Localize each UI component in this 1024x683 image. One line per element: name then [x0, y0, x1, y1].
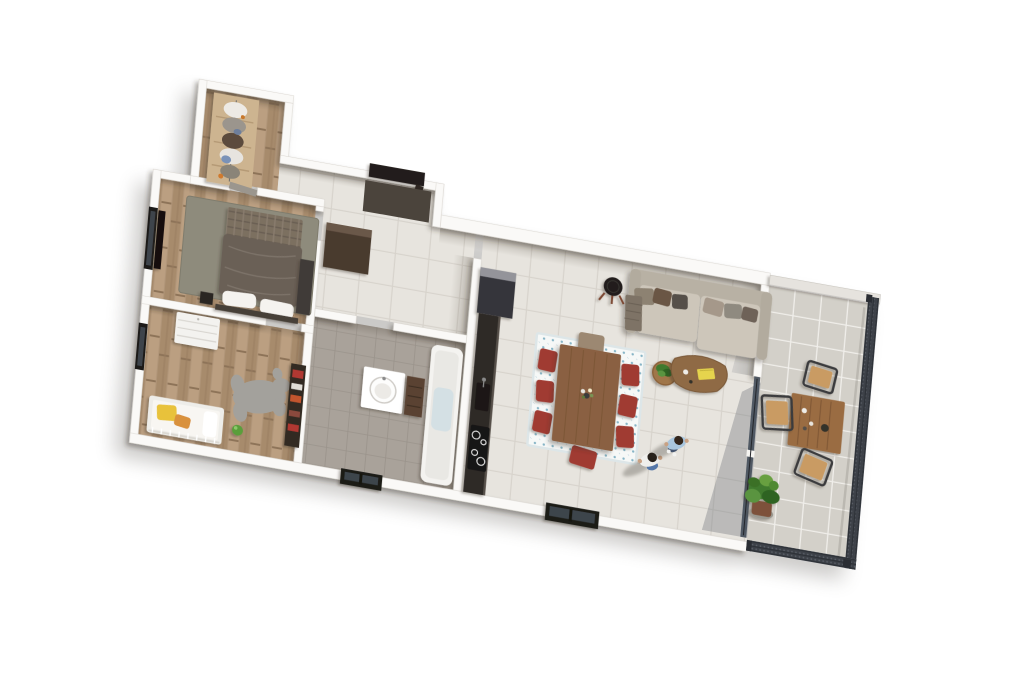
- tub-water: [431, 386, 454, 432]
- plan-projection-group: [114, 70, 888, 586]
- master-bed: [215, 206, 307, 324]
- hallway-closet: [323, 222, 372, 274]
- bedding-yellow: [157, 404, 177, 421]
- dining-table: [552, 344, 622, 451]
- bathroom-cabinet: [404, 376, 425, 418]
- washbasin: [361, 366, 406, 414]
- kitchen-sink: [474, 382, 490, 411]
- apartment-3d-plan: [0, 0, 1024, 683]
- floor-plan-render: [0, 0, 1024, 683]
- terrace-table: [787, 393, 845, 455]
- cooktop: [467, 424, 490, 472]
- bedside-table: [200, 291, 214, 305]
- kitchen-tall-unit: [477, 267, 516, 319]
